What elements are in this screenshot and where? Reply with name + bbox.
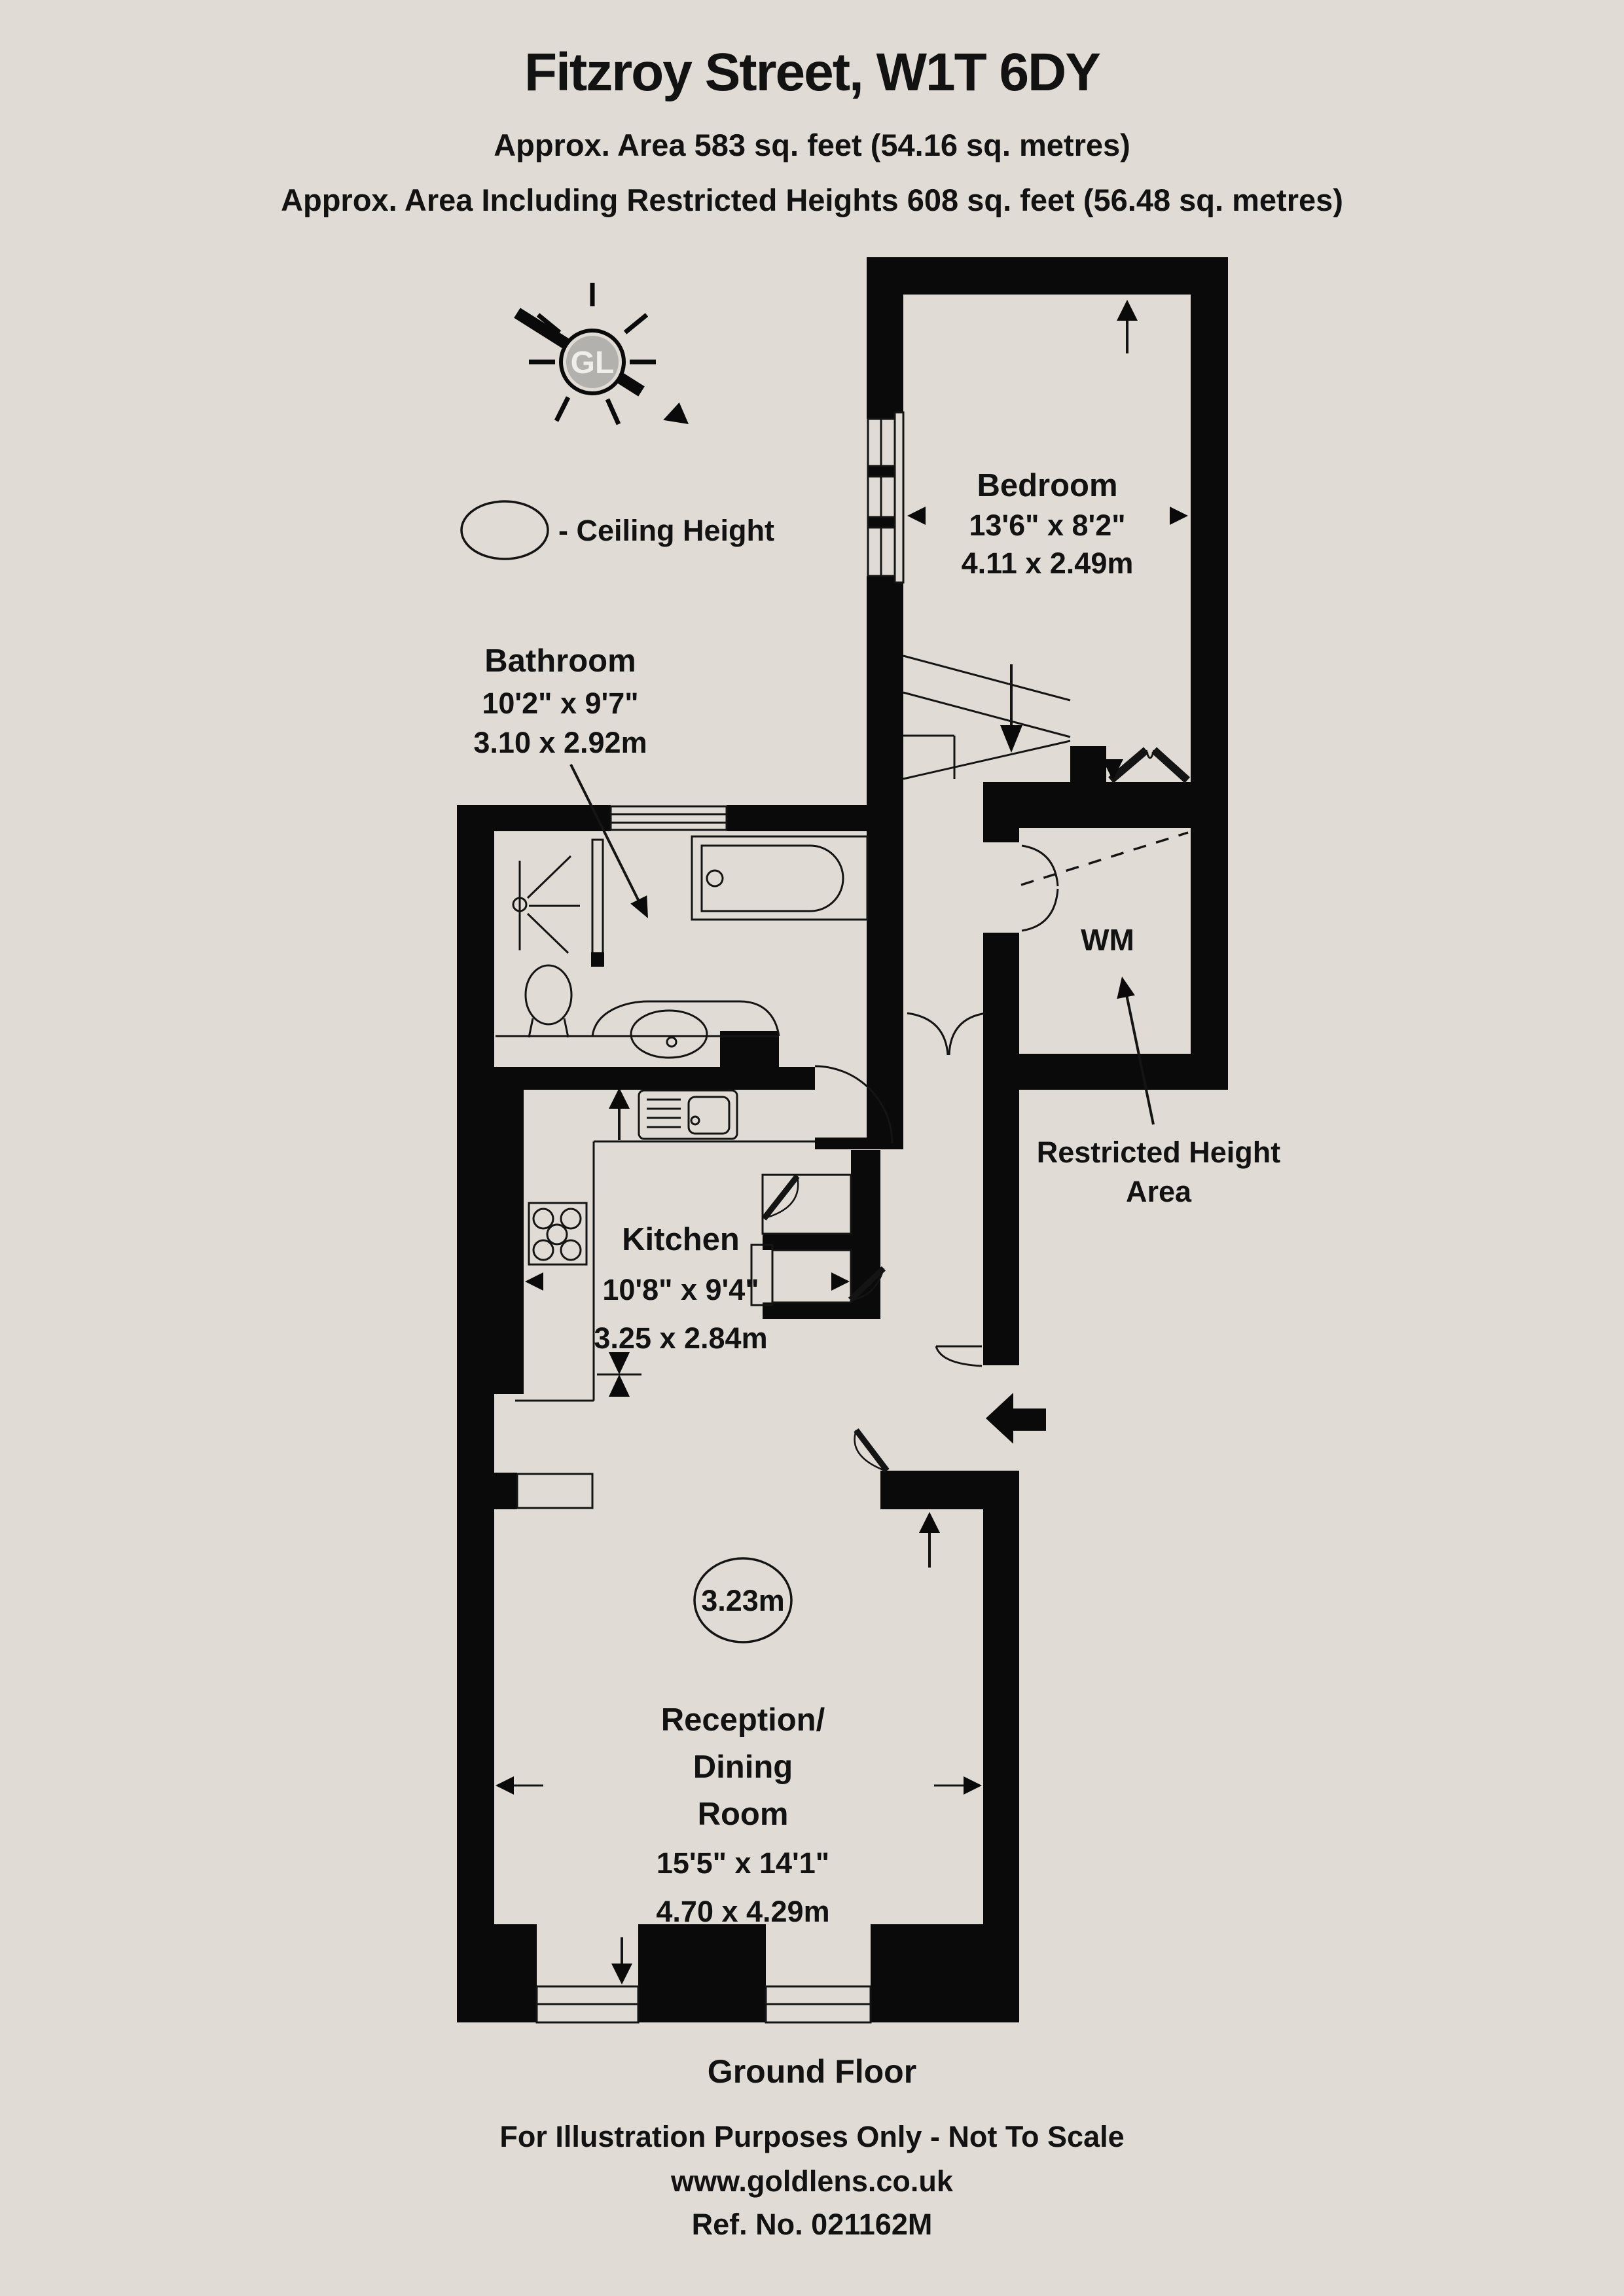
reference-number: Ref. No. 021162M xyxy=(0,2208,1624,2241)
restricted-height-arrow-icon xyxy=(1113,975,1153,1124)
svg-text:3.10 x 2.92m: 3.10 x 2.92m xyxy=(473,726,647,759)
svg-text:3.25 x 2.84m: 3.25 x 2.84m xyxy=(594,1321,767,1355)
svg-text:Area: Area xyxy=(1126,1175,1192,1208)
wall xyxy=(494,1067,815,1090)
hall-double-door xyxy=(907,1013,986,1055)
website: www.goldlens.co.uk xyxy=(0,2165,1624,2198)
wall xyxy=(457,1080,524,1394)
svg-text:4.11 x 2.49m: 4.11 x 2.49m xyxy=(962,547,1134,580)
svg-text:Restricted Height: Restricted Height xyxy=(1037,1136,1281,1169)
disclaimer: For Illustration Purposes Only - Not To … xyxy=(0,2121,1624,2153)
stairs-direction-arrow-icon xyxy=(1000,664,1022,753)
wall xyxy=(1191,257,1228,1090)
wall xyxy=(638,1924,766,2022)
bathroom-label: Bathroom 10'2" x 9'7" 3.10 x 2.92m xyxy=(473,643,647,759)
svg-text:Kitchen: Kitchen xyxy=(622,1222,740,1257)
wall xyxy=(1070,746,1106,782)
ceiling-height-ellipse-icon xyxy=(461,501,548,559)
wall xyxy=(867,805,903,1149)
entrance-arrow-icon xyxy=(986,1393,1046,1444)
bedroom-double-door xyxy=(1111,750,1187,780)
doors xyxy=(764,750,1187,1471)
wall xyxy=(763,1234,851,1250)
wall xyxy=(983,782,1228,828)
wall xyxy=(983,1054,1228,1090)
svg-text:Bedroom: Bedroom xyxy=(977,468,1117,503)
svg-text:10'2" x 9'7": 10'2" x 9'7" xyxy=(482,687,638,720)
bathroom-fixtures xyxy=(496,836,867,1058)
reception-label: Reception/ Dining Room 15'5" x 14'1" 4.7… xyxy=(656,1702,829,1928)
wall xyxy=(867,257,1228,295)
floorplan-drawing: GL - Ceiling Height Bedroom 13'6" x 8'2"… xyxy=(0,0,1624,2296)
svg-text:Room: Room xyxy=(698,1797,789,1832)
wall xyxy=(983,933,1019,1054)
floorplan-page: Fitzroy Street, W1T 6DY Approx. Area 583… xyxy=(0,0,1624,2296)
wall xyxy=(983,1090,1019,1365)
svg-text:10'8" x 9'4": 10'8" x 9'4" xyxy=(602,1273,759,1306)
wall xyxy=(880,1471,983,1509)
bathtub-icon xyxy=(692,836,867,920)
restricted-height-label: Restricted Height Area xyxy=(1037,1136,1281,1208)
svg-text:Bathroom: Bathroom xyxy=(484,643,636,679)
bathroom-window xyxy=(611,806,727,830)
floor-label: Ground Floor xyxy=(0,2054,1624,2090)
front-door xyxy=(936,1346,982,1366)
svg-text:Dining: Dining xyxy=(693,1749,793,1785)
wall xyxy=(457,1473,517,1509)
wm-label: WM xyxy=(1081,923,1134,957)
bedroom-window xyxy=(868,412,903,583)
sink-icon xyxy=(639,1090,737,1139)
svg-text:13'6" x 8'2": 13'6" x 8'2" xyxy=(969,509,1125,542)
shower-icon xyxy=(513,856,580,953)
restricted-height-dashed-line xyxy=(1021,833,1188,885)
bedroom-label: Bedroom 13'6" x 8'2" 4.11 x 2.49m xyxy=(962,468,1134,580)
gl-logo: GL xyxy=(517,283,696,433)
reception-bay-window-right xyxy=(766,1986,871,2022)
wm-door xyxy=(1022,846,1058,931)
ceiling-height-legend: - Ceiling Height xyxy=(461,501,774,559)
kitchen-label: Kitchen 10'8" x 9'4" 3.25 x 2.84m xyxy=(594,1222,767,1355)
ceiling-height-legend-label: - Ceiling Height xyxy=(558,514,774,547)
stairs xyxy=(903,656,1070,779)
wall xyxy=(871,1924,1019,2022)
reception-ceiling-height: 3.23m xyxy=(695,1558,791,1642)
hob-icon xyxy=(529,1203,586,1265)
reception-bay-window-left xyxy=(537,1986,638,2022)
logo-initials: GL xyxy=(571,346,615,380)
wall xyxy=(867,576,903,805)
cupboard-door-top xyxy=(764,1176,798,1219)
svg-text:Reception/: Reception/ xyxy=(661,1702,825,1738)
svg-text:4.70 x 4.29m: 4.70 x 4.29m xyxy=(656,1895,829,1928)
toilet-icon xyxy=(526,965,571,1037)
wall xyxy=(763,1302,880,1319)
reception-ledge xyxy=(517,1474,592,1508)
wall xyxy=(983,828,1019,842)
shower-screen xyxy=(591,840,604,967)
wall xyxy=(867,295,903,419)
kitchen-counter xyxy=(515,1141,815,1401)
wall xyxy=(457,1924,537,2022)
reception-door xyxy=(855,1430,887,1471)
svg-text:15'5" x 14'1": 15'5" x 14'1" xyxy=(657,1846,829,1880)
wall xyxy=(457,805,494,1080)
bathroom-leader-arrow-icon xyxy=(571,764,657,922)
svg-text:3.23m: 3.23m xyxy=(701,1584,785,1617)
